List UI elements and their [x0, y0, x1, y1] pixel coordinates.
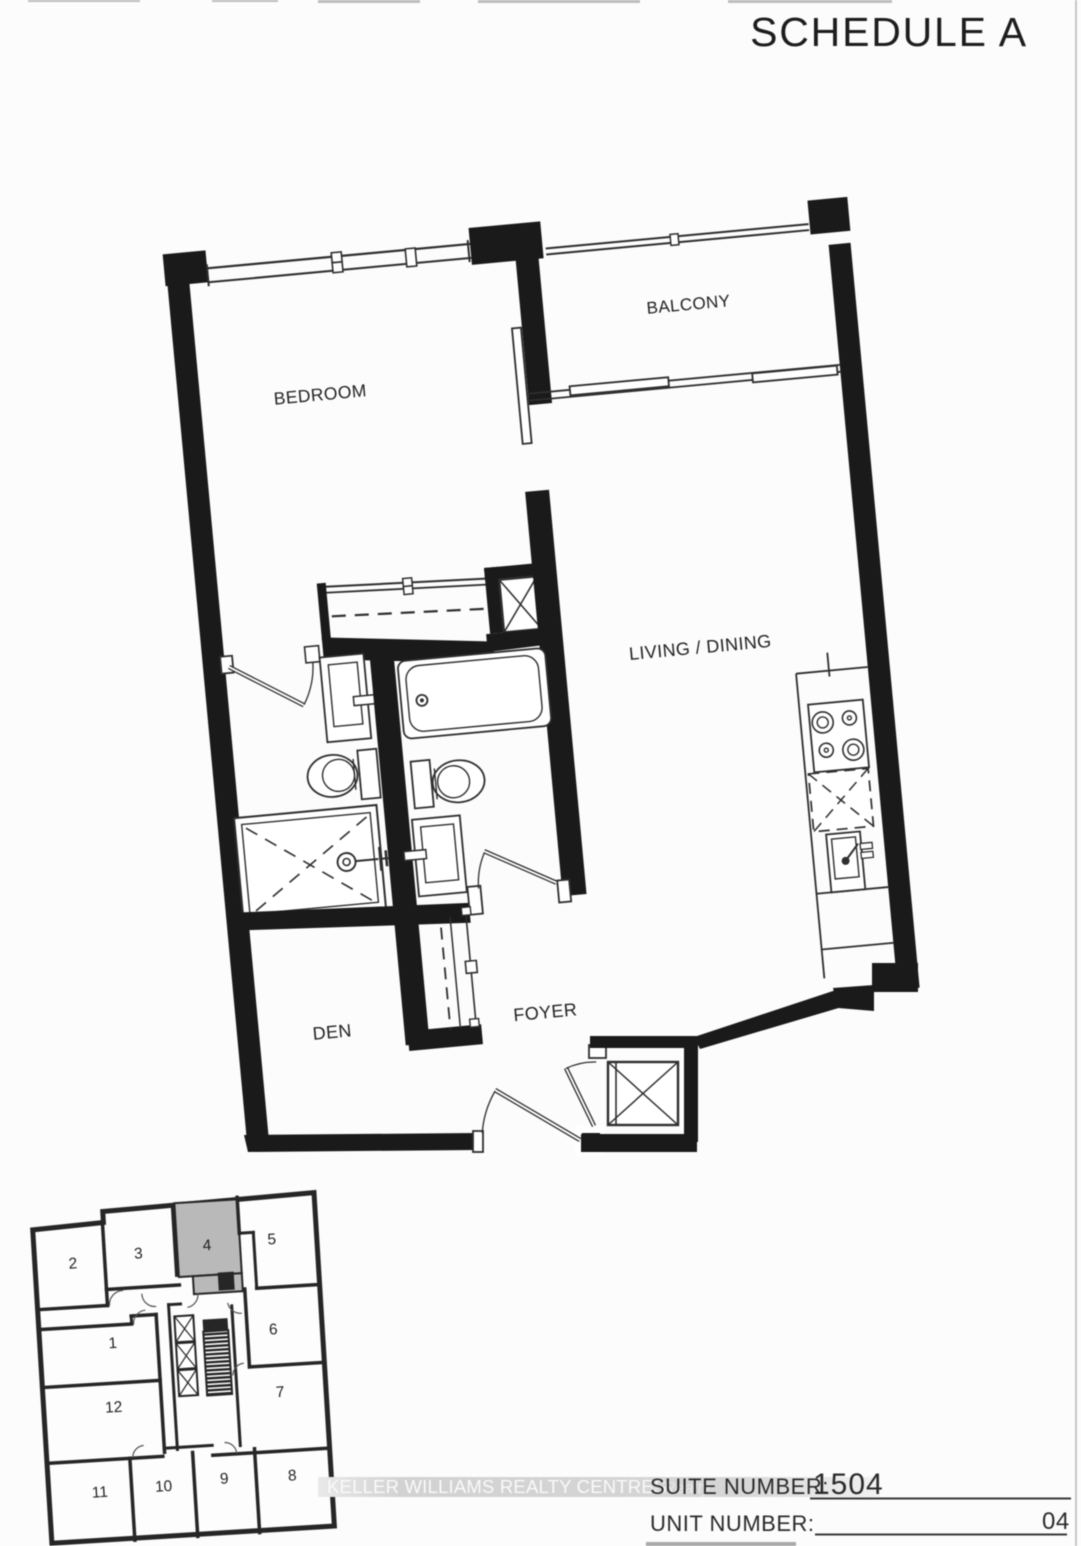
svg-text:11: 11 — [91, 1484, 108, 1502]
svg-text:3: 3 — [134, 1245, 144, 1262]
svg-text:7: 7 — [275, 1384, 285, 1401]
svg-text:4: 4 — [202, 1237, 212, 1255]
svg-text:DEN: DEN — [312, 1020, 353, 1044]
svg-text:1504: 1504 — [813, 1468, 884, 1501]
svg-text:9: 9 — [219, 1470, 229, 1487]
svg-text:1: 1 — [108, 1335, 118, 1352]
svg-text:SCHEDULE A: SCHEDULE A — [750, 9, 1028, 55]
svg-text:BALCONY: BALCONY — [646, 291, 731, 318]
svg-text:04: 04 — [1042, 1508, 1070, 1535]
svg-text:8: 8 — [287, 1467, 297, 1484]
svg-text:LIVING / DINING: LIVING / DINING — [628, 631, 772, 664]
svg-text:SUITE NUMBER:: SUITE NUMBER: — [650, 1474, 829, 1499]
svg-text:12: 12 — [105, 1399, 123, 1417]
svg-text:FOYER: FOYER — [512, 999, 578, 1025]
svg-text:6: 6 — [268, 1321, 278, 1338]
svg-text:KELLER WILLIAMS REALTY CENTRES: KELLER WILLIAMS REALTY CENTRES — [327, 1476, 666, 1497]
svg-text:5: 5 — [267, 1231, 277, 1248]
svg-text:BEDROOM: BEDROOM — [273, 380, 368, 409]
svg-text:10: 10 — [155, 1478, 174, 1496]
svg-text:2: 2 — [68, 1255, 78, 1272]
svg-text:UNIT NUMBER:: UNIT NUMBER: — [650, 1511, 815, 1536]
